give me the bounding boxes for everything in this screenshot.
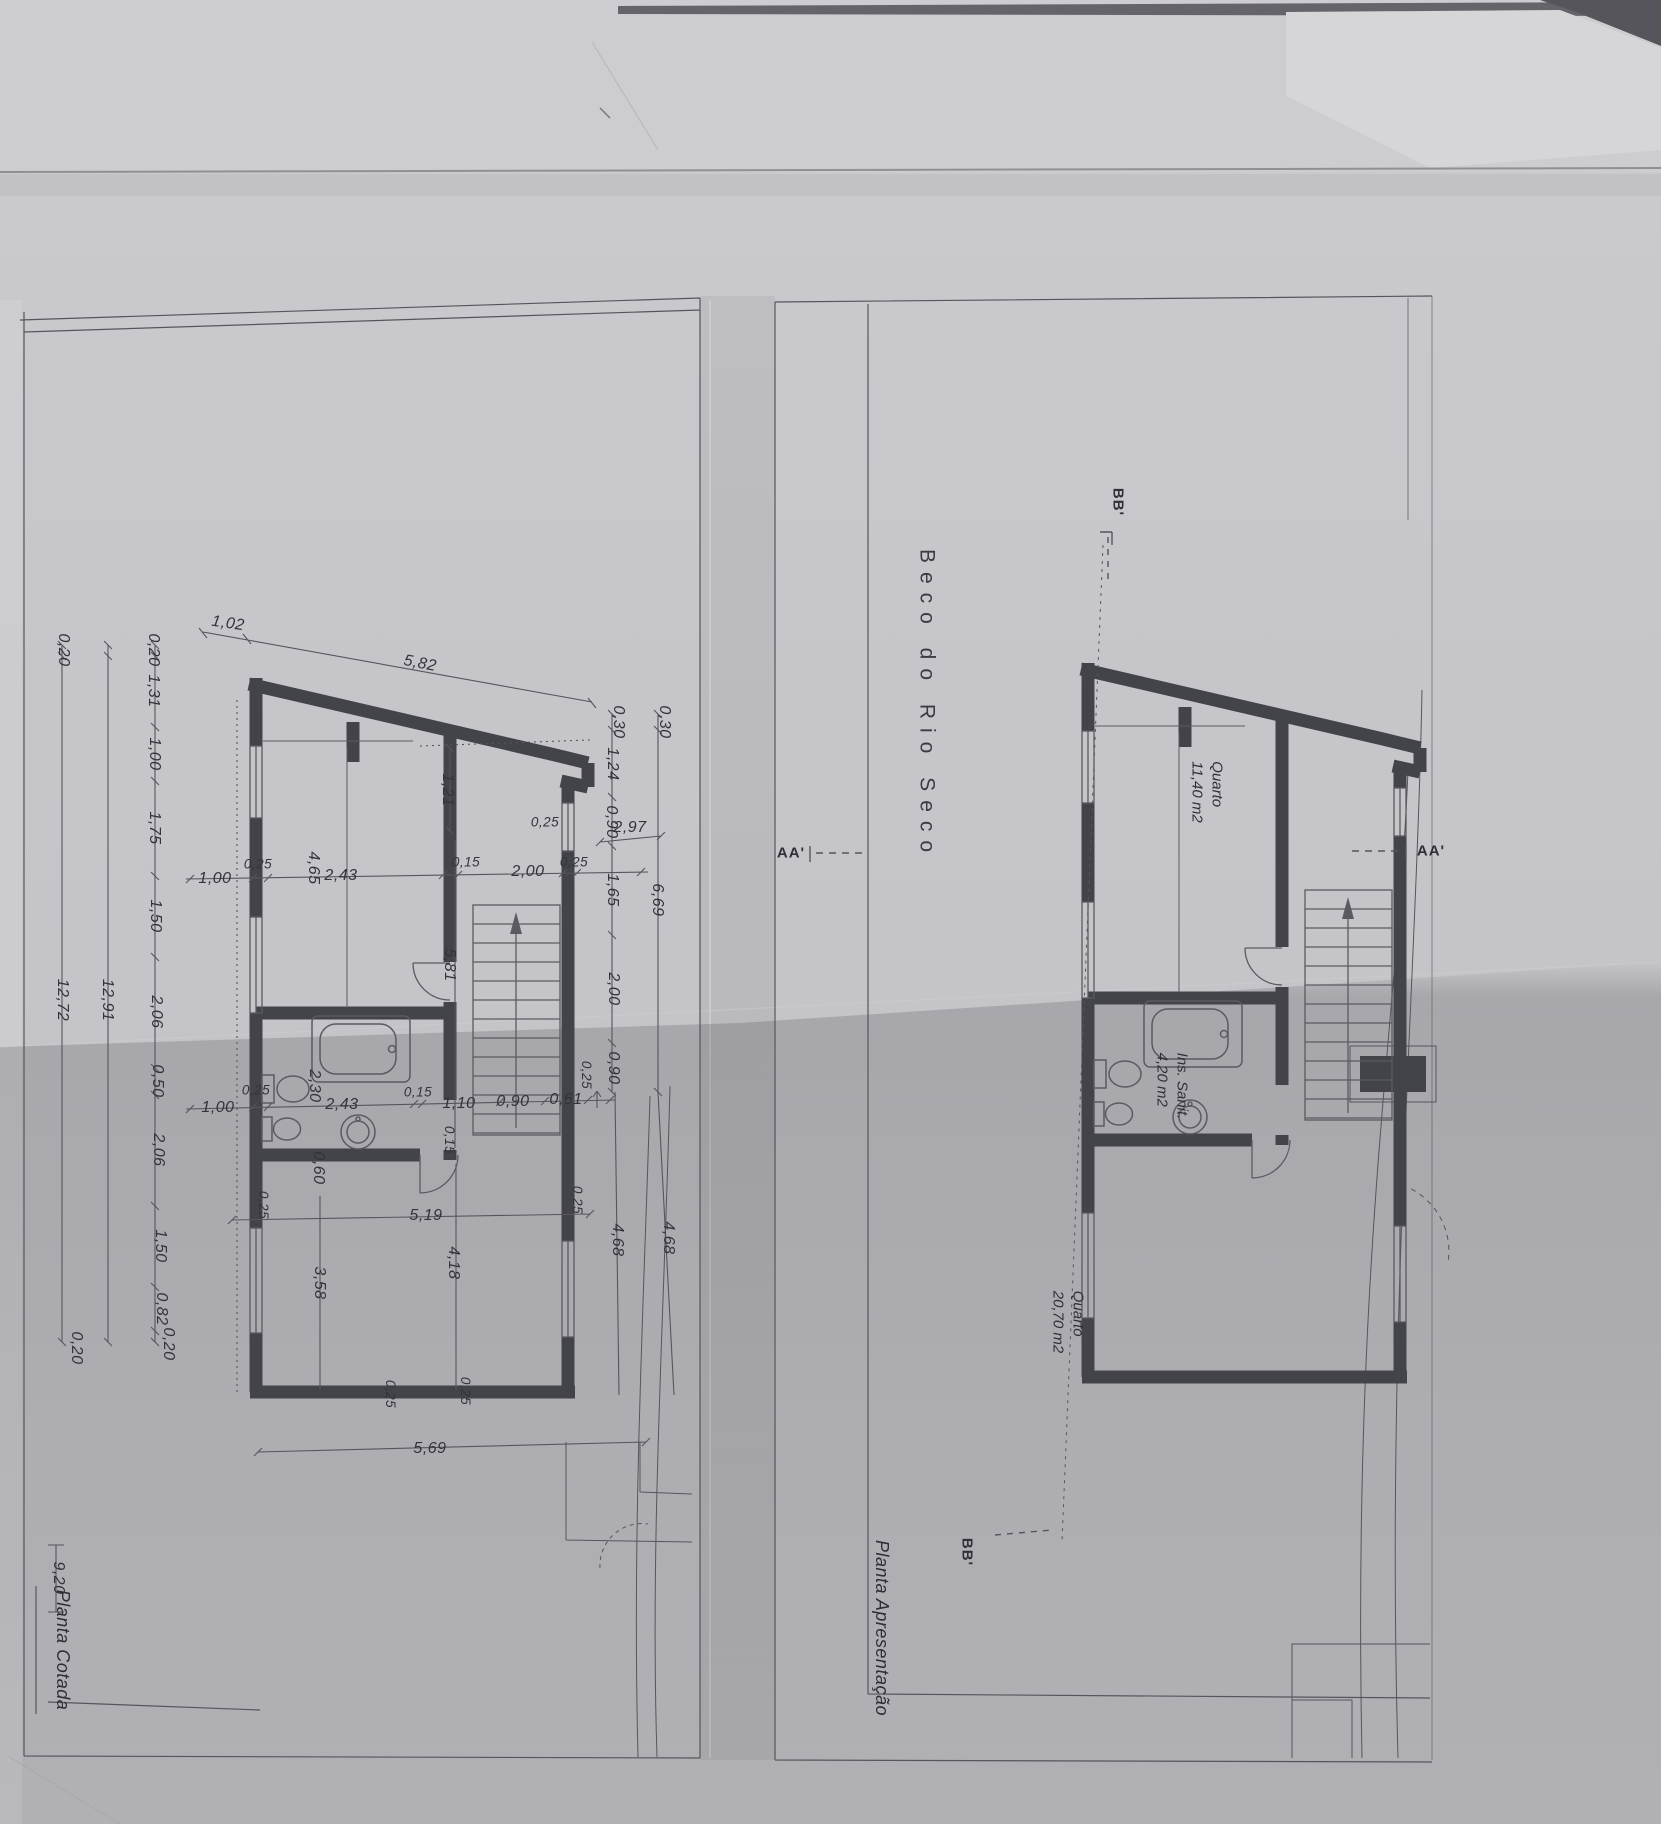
section-marker-bb-bottom: BB' [960, 1538, 975, 1566]
dim-label: 3,58 [311, 1266, 327, 1299]
right-plan-title: Planta Apresentação [873, 1540, 891, 1716]
street-name-label: Beco do Rio Seco [917, 549, 938, 861]
scanned-floor-plan-photo: 1,02 5,82 1,00 0,25 2,43 0,15 2,00 0,25 … [0, 0, 1661, 1824]
dim-label: 2,43 [325, 1097, 358, 1113]
dim-label: 2,43 [324, 868, 357, 884]
dim-label: 0,60 [310, 1151, 326, 1184]
dim-label: 2,00 [605, 972, 621, 1005]
dim-label: 0,50 [149, 1064, 165, 1097]
dim-label: 1,24 [604, 747, 620, 780]
dim-label: 0,15 [442, 1126, 456, 1154]
dim-label: 1,00 [201, 1100, 234, 1116]
dim-label: 2,30 [306, 1069, 322, 1102]
dim-label: 1,65 [604, 873, 620, 906]
dim-label: 5,19 [409, 1208, 442, 1224]
dim-label: 2,00 [511, 864, 544, 880]
dim-label: 0,25 [570, 1186, 584, 1214]
room-label: Quarto 11,40 m2 [1188, 761, 1227, 822]
section-marker-aa-left: AA' [777, 846, 805, 861]
dim-label: 0,61 [549, 1092, 582, 1108]
dim-label: 0,90 [603, 805, 619, 838]
dim-label: 0,30 [656, 705, 672, 738]
room-name: Ins. Sanit. [1172, 1053, 1192, 1120]
dim-label: 0,25 [383, 1380, 397, 1408]
room-label: Quarto 20,70 m2 [1049, 1291, 1088, 1354]
dim-label: 2,06 [150, 1133, 166, 1166]
dim-label: 0,30 [610, 705, 626, 738]
dim-label: 0,15 [452, 855, 480, 869]
dim-label: 5,81 [441, 948, 457, 981]
dim-label: 0,20 [68, 1331, 84, 1364]
paper-artifacts [0, 0, 1661, 1824]
dim-label: 0,20 [55, 633, 71, 666]
dim-label: 1,31 [145, 674, 161, 707]
dim-label: 0,82 [153, 1292, 169, 1325]
room-area: 4,20 m2 [1153, 1053, 1173, 1120]
dim-label: 12,91 [99, 979, 115, 1022]
dim-label: 0,25 [458, 1377, 472, 1405]
dim-label: 2,06 [148, 995, 164, 1028]
dim-label: 1,00 [198, 871, 231, 887]
dim-label: 0,90 [605, 1051, 621, 1084]
dim-label: 0,25 [242, 1083, 270, 1097]
floor-plan-drawing [0, 0, 1661, 1824]
dim-label: 4,18 [445, 1246, 461, 1279]
section-marker-bb-top: BB' [1111, 488, 1126, 516]
dim-label: 6,69 [649, 883, 665, 916]
room-area: 20,70 m2 [1049, 1291, 1069, 1354]
room-name: Quarto [1068, 1291, 1088, 1354]
room-area: 11,40 m2 [1188, 761, 1208, 822]
dim-label: 4,68 [660, 1221, 676, 1254]
dim-label: 1,21 [439, 773, 455, 806]
dim-label: 1,50 [152, 1229, 168, 1262]
dim-label: 4,65 [305, 851, 321, 884]
dim-label: 1,10 [442, 1096, 475, 1112]
dim-label: 0,15 [404, 1085, 432, 1099]
dim-label: 0,25 [560, 855, 588, 869]
dim-label: 0,20 [145, 633, 161, 666]
dim-label: 0,25 [579, 1061, 593, 1089]
dim-label: 0,25 [531, 815, 559, 829]
left-plan-title: Planta Cotada [54, 1590, 72, 1711]
section-marker-aa-right: AA' [1417, 844, 1445, 859]
dim-label: 0,90 [496, 1094, 529, 1110]
dim-label: 0,25 [256, 1191, 270, 1219]
dim-label: 0,25 [244, 857, 272, 871]
room-label: Ins. Sanit. 4,20 m2 [1153, 1053, 1192, 1120]
room-name: Quarto [1207, 761, 1227, 822]
dim-label: 1,75 [146, 811, 162, 844]
dim-label: 1,00 [146, 737, 162, 770]
dim-label: 0,20 [160, 1327, 176, 1360]
dim-label: 12,72 [54, 979, 70, 1022]
dim-label: 4,68 [609, 1223, 625, 1256]
dim-label: 5,69 [413, 1441, 446, 1457]
dim-label: 1,50 [147, 899, 163, 932]
